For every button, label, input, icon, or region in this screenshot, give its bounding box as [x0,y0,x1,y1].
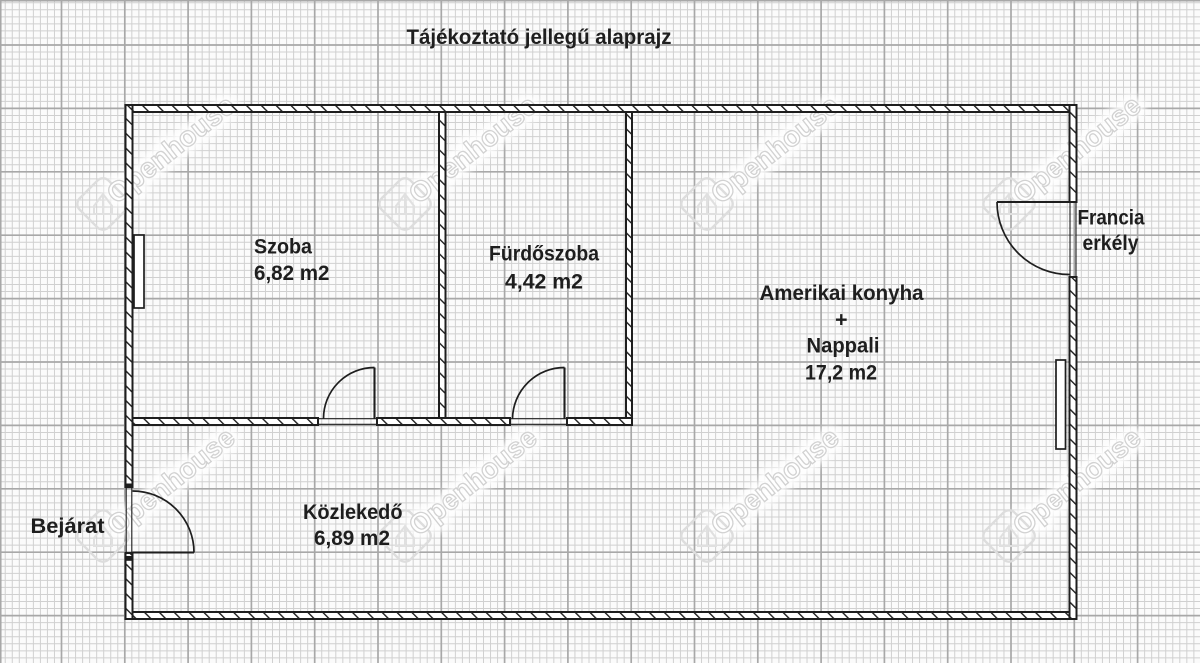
svg-text:Közlekedő: Közlekedő [303,500,403,524]
svg-text:17,2 m2: 17,2 m2 [805,361,877,385]
svg-text:+: + [835,308,848,332]
svg-text:4,42 m2: 4,42 m2 [505,270,583,294]
svg-text:Nappali: Nappali [807,334,880,358]
svg-text:Tájékoztató jellegű alaprajz: Tájékoztató jellegű alaprajz [407,26,672,49]
svg-text:erkély: erkély [1083,231,1139,255]
svg-text:Francia: Francia [1078,206,1146,230]
svg-text:Bejárat: Bejárat [31,514,105,538]
svg-text:Amerikai konyha: Amerikai konyha [760,281,925,305]
svg-text:6,82 m2: 6,82 m2 [254,261,330,285]
svg-text:Fürdőszoba: Fürdőszoba [489,242,600,266]
svg-text:6,89 m2: 6,89 m2 [314,526,390,550]
svg-text:Szoba: Szoba [254,235,313,259]
